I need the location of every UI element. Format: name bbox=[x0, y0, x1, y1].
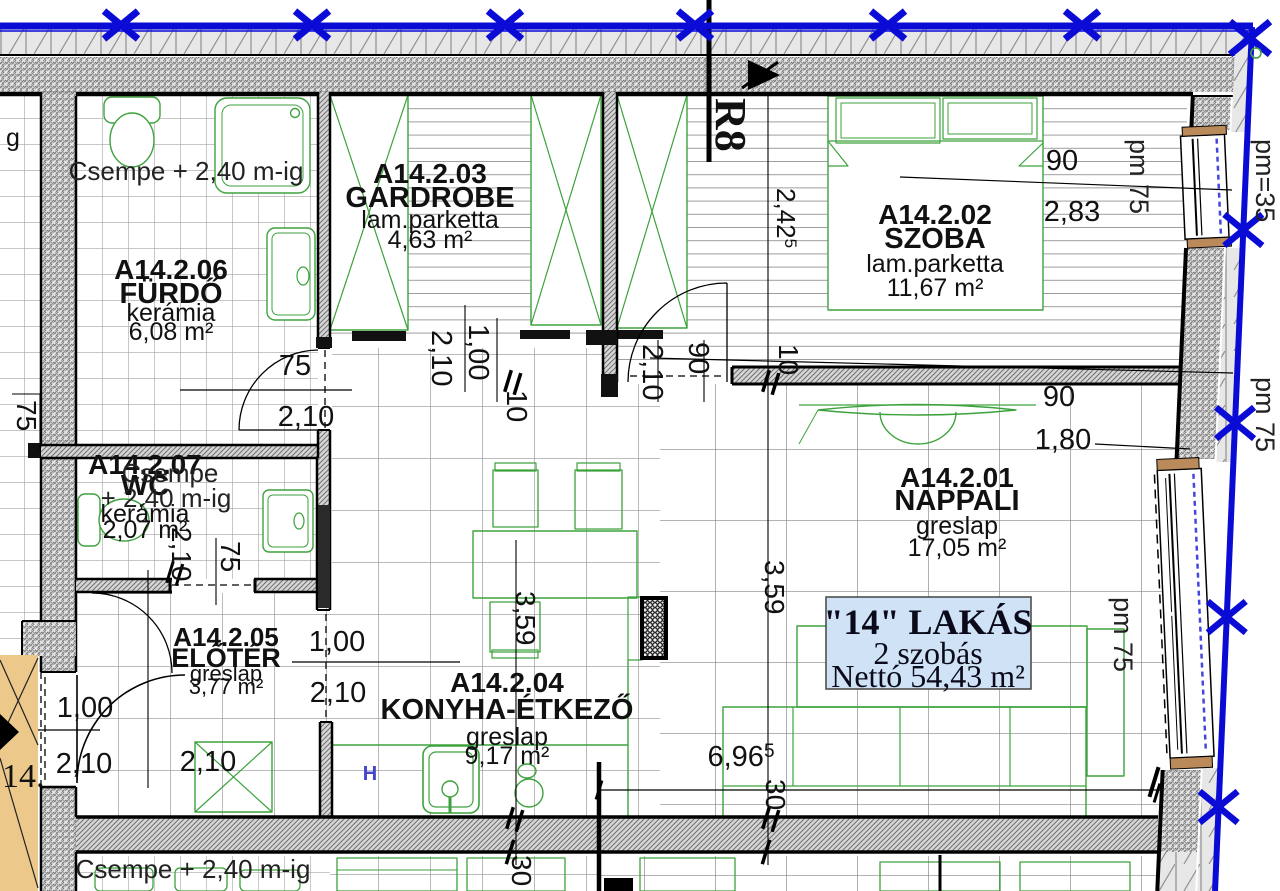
svg-text:H: H bbox=[363, 763, 377, 785]
svg-text:pm=35: pm=35 bbox=[1250, 139, 1280, 222]
svg-text:3,59: 3,59 bbox=[510, 591, 541, 646]
svg-text:2,10: 2,10 bbox=[180, 746, 236, 778]
svg-text:+ 2,40 m-ig: + 2,40 m-ig bbox=[101, 483, 232, 513]
svg-text:30: 30 bbox=[760, 779, 791, 810]
svg-text:90: 90 bbox=[1043, 381, 1075, 413]
svg-text:pm 75: pm 75 bbox=[1250, 377, 1280, 452]
svg-text:75: 75 bbox=[11, 400, 42, 431]
svg-text:4,63 m²: 4,63 m² bbox=[388, 226, 473, 254]
svg-text:2,10: 2,10 bbox=[56, 748, 112, 780]
svg-text:14.: 14. bbox=[2, 758, 45, 795]
svg-text:6,08 m²: 6,08 m² bbox=[129, 318, 214, 346]
svg-text:Csempe + 2,40 m-ig: Csempe + 2,40 m-ig bbox=[69, 156, 304, 186]
svg-text:1,00: 1,00 bbox=[57, 692, 113, 724]
svg-text:75: 75 bbox=[215, 541, 246, 572]
svg-text:2,10: 2,10 bbox=[425, 330, 457, 386]
svg-text:2,83: 2,83 bbox=[1044, 196, 1100, 228]
svg-text:1,00: 1,00 bbox=[462, 324, 494, 380]
svg-text:2,10: 2,10 bbox=[310, 677, 366, 709]
svg-text:3,77 m²: 3,77 m² bbox=[189, 674, 264, 699]
svg-text:2,10: 2,10 bbox=[166, 527, 197, 582]
svg-text:R8: R8 bbox=[706, 98, 755, 152]
svg-text:90: 90 bbox=[682, 342, 714, 374]
svg-text:11,67 m²: 11,67 m² bbox=[887, 274, 984, 302]
svg-text:3,59: 3,59 bbox=[759, 560, 790, 615]
svg-text:9,17 m²: 9,17 m² bbox=[465, 742, 550, 770]
svg-text:90: 90 bbox=[1046, 145, 1078, 177]
svg-text:Csempe + 2,40 m-ig: Csempe + 2,40 m-ig bbox=[76, 854, 311, 884]
svg-text:KONYHA-ÉTKEZŐ: KONYHA-ÉTKEZŐ bbox=[381, 692, 634, 726]
svg-text:pm 75: pm 75 bbox=[1108, 597, 1138, 672]
svg-text:30: 30 bbox=[506, 855, 537, 886]
svg-text:2,10: 2,10 bbox=[278, 401, 334, 433]
svg-text:17,05 m²: 17,05 m² bbox=[908, 534, 1007, 562]
svg-text:10: 10 bbox=[500, 390, 532, 422]
svg-text:pm 75: pm 75 bbox=[1124, 139, 1154, 214]
svg-text:75: 75 bbox=[279, 350, 311, 382]
svg-text:1,00: 1,00 bbox=[309, 626, 365, 658]
svg-text:Nettó 54,43 m²: Nettó 54,43 m² bbox=[831, 658, 1025, 694]
svg-text:1,80: 1,80 bbox=[1035, 424, 1091, 456]
svg-text:10: 10 bbox=[773, 344, 804, 375]
svg-text:2,10: 2,10 bbox=[636, 344, 668, 400]
svg-text:g: g bbox=[6, 124, 20, 152]
